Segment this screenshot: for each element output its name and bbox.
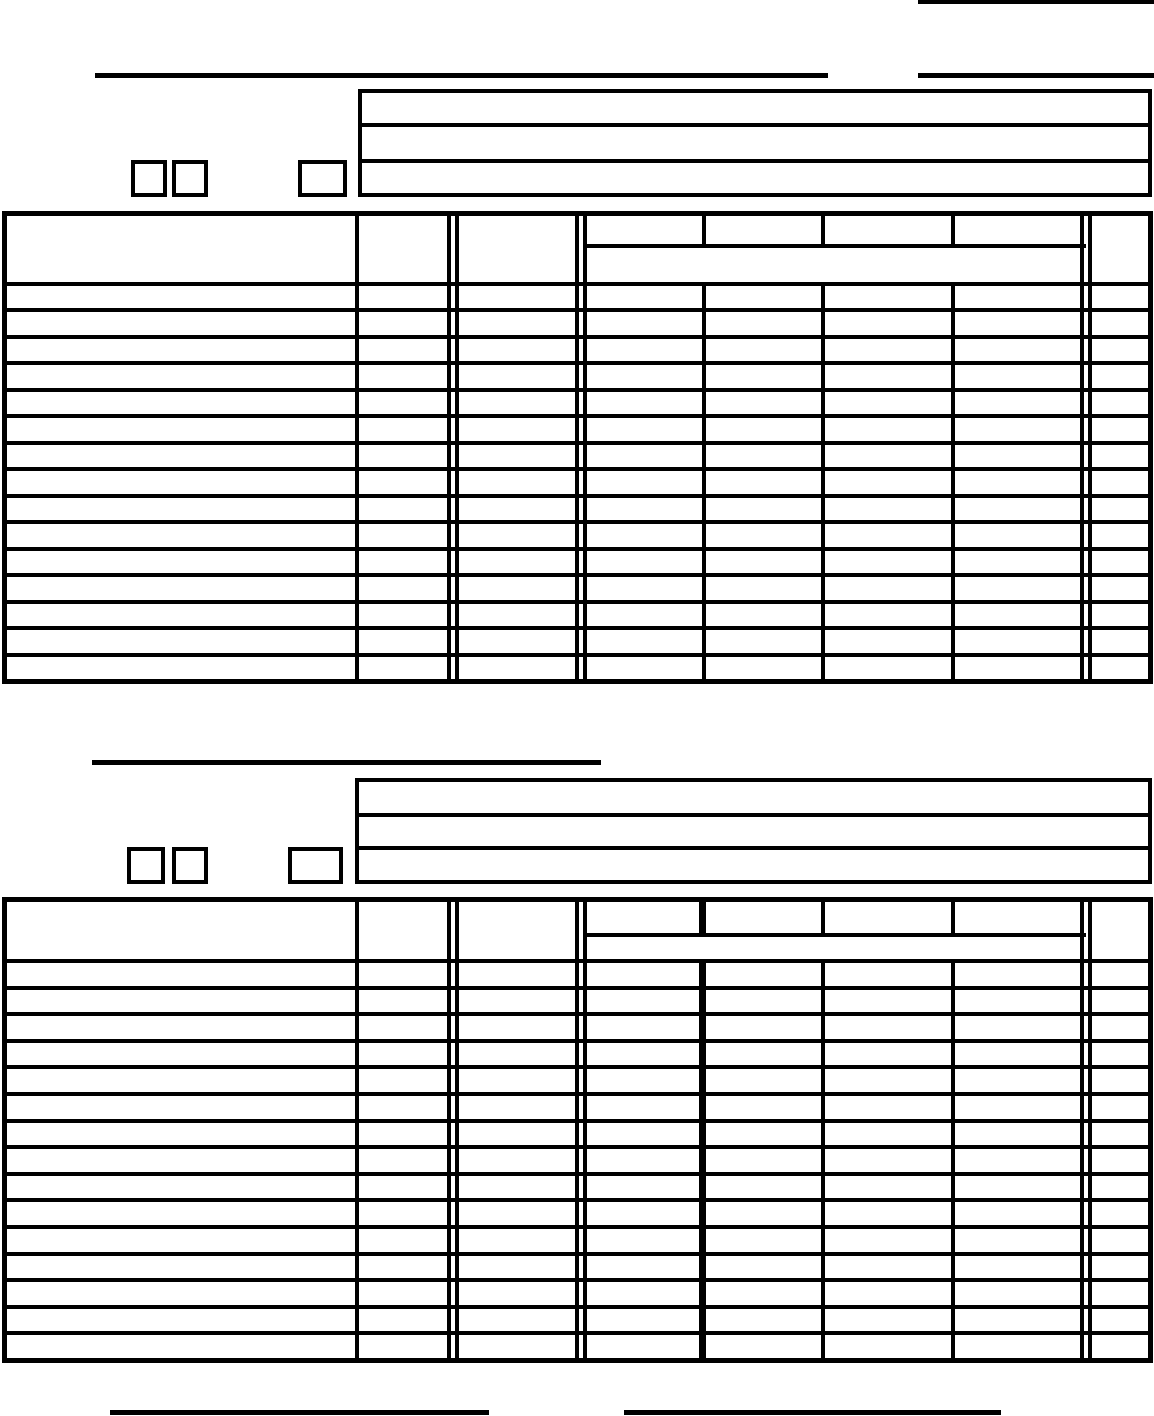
table-column-line [575,897,579,1363]
table-cell[interactable] [9,365,355,387]
table-cell[interactable] [361,286,447,308]
table-cell[interactable] [9,551,355,573]
table-cell[interactable] [361,1149,447,1172]
scoresheet-page [0,0,1154,1416]
table-cell[interactable] [9,1282,355,1305]
table-cell[interactable] [361,312,447,334]
table-cell[interactable] [459,630,575,652]
merged-subheader-cell [587,937,1080,955]
table-cell[interactable] [361,418,447,440]
table-cell[interactable] [825,1256,951,1279]
table-cell[interactable] [955,1043,1080,1066]
table-cell[interactable] [459,1229,575,1252]
table-cell[interactable] [825,1096,951,1119]
table-cell[interactable] [9,1149,355,1172]
header-blank-line-right[interactable] [918,73,1154,78]
table-cell[interactable] [709,1282,821,1305]
table-cell[interactable] [459,577,575,599]
table-cell[interactable] [709,1176,821,1199]
table-cell[interactable] [709,445,821,467]
table-cell[interactable] [955,471,1080,493]
table-cell[interactable] [709,1016,821,1039]
table-cell[interactable] [709,418,821,440]
table-cell[interactable] [709,339,821,361]
upper-info-box [358,89,1152,197]
table-cell[interactable] [459,365,575,387]
table-cell[interactable] [459,551,575,573]
table-cell[interactable] [587,365,702,387]
table-cell[interactable] [361,1043,447,1066]
table-cell[interactable] [361,1096,447,1119]
table-cell[interactable] [587,339,702,361]
table-column-line [702,282,706,684]
table-column-line [355,211,359,684]
table-column-line [575,211,579,684]
table-cell[interactable] [587,286,702,308]
table-cell[interactable] [459,498,575,520]
table-cell[interactable] [1092,339,1146,361]
table-cell[interactable] [1092,604,1146,626]
table-cell[interactable] [955,1149,1080,1172]
table-cell[interactable] [955,1016,1080,1039]
table-cell[interactable] [709,1202,821,1225]
table-cell[interactable] [9,1043,355,1066]
table-cell[interactable] [709,657,821,679]
table-cell[interactable] [361,365,447,387]
table-cell[interactable] [361,1229,447,1252]
table-cell[interactable] [361,1309,447,1332]
table-cell[interactable] [459,524,575,546]
table-cell[interactable] [459,1149,575,1172]
table-cell[interactable] [825,630,951,652]
table-cell[interactable] [9,312,355,334]
table-cell[interactable] [1092,1176,1146,1199]
table-cell[interactable] [587,1309,702,1332]
table-cell[interactable] [1092,392,1146,414]
table-cell[interactable] [9,604,355,626]
table-cell[interactable] [9,1256,355,1279]
table-cell[interactable] [459,445,575,467]
info-box-write-in-line[interactable] [364,163,1146,191]
table-cell[interactable] [1092,1069,1146,1092]
table-cell[interactable] [1092,365,1146,387]
table-cell[interactable] [955,312,1080,334]
table-cell[interactable] [361,1123,447,1146]
table-column-line [447,211,451,684]
footer-blank-line-left[interactable] [110,1410,489,1415]
table-cell[interactable] [459,286,575,308]
table-cell[interactable] [9,1069,355,1092]
table-cell[interactable] [9,1309,355,1332]
info-box-write-in-line[interactable] [364,93,1146,123]
table-cell[interactable] [459,1016,575,1039]
table-cell[interactable] [709,604,821,626]
table-cell[interactable] [1092,524,1146,546]
table-cell[interactable] [459,1256,575,1279]
table-cell[interactable] [361,990,447,1013]
merged-subheader-cell [587,248,1080,278]
table-cell[interactable] [459,1335,575,1358]
table-cell[interactable] [825,471,951,493]
table-cell[interactable] [361,1202,447,1225]
footer-blank-line-right[interactable] [624,1410,1001,1415]
table-column-line [702,211,706,248]
table-cell[interactable] [825,577,951,599]
table-cell[interactable] [361,551,447,573]
table-cell[interactable] [825,657,951,679]
table-cell[interactable] [955,657,1080,679]
table-cell[interactable] [955,1309,1080,1332]
table-cell[interactable] [587,1016,702,1039]
table-cell[interactable] [709,1043,821,1066]
table-cell[interactable] [587,1043,702,1066]
table-cell[interactable] [361,445,447,467]
table-cell[interactable] [709,1229,821,1252]
table-cell[interactable] [825,286,951,308]
table-cell[interactable] [459,657,575,679]
lower-info-box [355,778,1152,884]
table-header-cell [955,216,1080,244]
lower-checkbox-row [0,847,420,884]
table-cell[interactable] [1092,1096,1146,1119]
table-cell[interactable] [709,990,821,1013]
table-cell[interactable] [955,1229,1080,1252]
table-cell[interactable] [1092,498,1146,520]
info-box-write-in-line[interactable] [361,817,1146,846]
table-cell[interactable] [459,1096,575,1119]
checkbox[interactable] [172,160,208,197]
table-cell[interactable] [587,445,702,467]
table-cell[interactable] [1092,1149,1146,1172]
table-cell[interactable] [9,1096,355,1119]
upper-roster-table [2,211,1153,684]
table-cell[interactable] [955,392,1080,414]
table-cell[interactable] [361,392,447,414]
table-cell[interactable] [955,551,1080,573]
table-cell[interactable] [361,524,447,546]
table-header-cell [361,216,447,282]
table-cell[interactable] [9,286,355,308]
table-cell[interactable] [9,418,355,440]
table-cell[interactable] [1092,1229,1146,1252]
table-cell[interactable] [459,339,575,361]
table-cell[interactable] [459,418,575,440]
table-cell[interactable] [587,1256,702,1279]
table-cell[interactable] [361,963,447,986]
table-cell[interactable] [955,963,1080,986]
table-cell[interactable] [1092,1309,1146,1332]
table-cell[interactable] [709,1096,821,1119]
table-cell[interactable] [1092,551,1146,573]
table-cell[interactable] [825,1149,951,1172]
table-cell[interactable] [825,1123,951,1146]
checkbox[interactable] [288,847,343,884]
table-cell[interactable] [825,312,951,334]
lower-title-blank-line[interactable] [92,760,601,765]
table-header-cell [361,902,447,959]
table-cell[interactable] [825,551,951,573]
table-cell[interactable] [825,1229,951,1252]
table-cell[interactable] [709,1256,821,1279]
table-cell[interactable] [587,498,702,520]
table-cell[interactable] [709,498,821,520]
table-cell[interactable] [459,963,575,986]
table-cell[interactable] [361,604,447,626]
table-column-line [1080,211,1084,684]
table-cell[interactable] [361,1282,447,1305]
table-cell[interactable] [9,524,355,546]
table-cell[interactable] [9,445,355,467]
table-cell[interactable] [709,1335,821,1358]
table-cell[interactable] [825,339,951,361]
table-cell[interactable] [825,604,951,626]
table-cell[interactable] [459,1123,575,1146]
table-cell[interactable] [825,1309,951,1332]
info-box-write-in-line[interactable] [364,127,1146,159]
table-cell[interactable] [9,498,355,520]
checkbox[interactable] [298,160,347,197]
table-header-cell [459,902,575,959]
table-cell[interactable] [9,392,355,414]
table-cell[interactable] [587,1335,702,1358]
table-cell[interactable] [825,963,951,986]
table-cell[interactable] [709,1309,821,1332]
table-cell[interactable] [955,1069,1080,1092]
table-header-cell [9,216,355,282]
table-cell[interactable] [955,365,1080,387]
table-cell[interactable] [361,657,447,679]
table-cell[interactable] [587,471,702,493]
table-cell[interactable] [955,577,1080,599]
table-cell[interactable] [825,1016,951,1039]
table-cell[interactable] [1092,990,1146,1013]
table-cell[interactable] [709,471,821,493]
table-cell[interactable] [9,1016,355,1039]
table-cell[interactable] [1092,1335,1146,1358]
table-cell[interactable] [1092,1256,1146,1279]
table-cell[interactable] [587,418,702,440]
table-cell[interactable] [709,524,821,546]
table-cell[interactable] [9,963,355,986]
table-cell[interactable] [825,365,951,387]
table-cell[interactable] [9,1176,355,1199]
table-cell[interactable] [361,1256,447,1279]
table-cell[interactable] [9,1123,355,1146]
table-cell[interactable] [9,1229,355,1252]
table-cell[interactable] [709,1123,821,1146]
table-cell[interactable] [459,1202,575,1225]
table-cell[interactable] [825,1202,951,1225]
table-cell[interactable] [587,630,702,652]
table-cell[interactable] [709,630,821,652]
table-cell[interactable] [587,1096,702,1119]
table-cell[interactable] [9,630,355,652]
table-column-line [447,897,451,1363]
table-cell[interactable] [955,990,1080,1013]
table-cell[interactable] [955,1335,1080,1358]
table-cell[interactable] [1092,657,1146,679]
lower-roster-table [2,897,1153,1363]
table-cell[interactable] [587,1123,702,1146]
info-box-write-in-line[interactable] [361,850,1146,876]
table-cell[interactable] [361,630,447,652]
table-header-cell [955,902,1080,933]
table-column-line [355,897,359,1363]
table-header-cell [587,216,702,244]
table-cell[interactable] [587,1069,702,1092]
table-cell[interactable] [709,365,821,387]
table-cell[interactable] [361,471,447,493]
top-right-rule [918,0,1154,4]
table-cell[interactable] [955,418,1080,440]
table-cell[interactable] [9,990,355,1013]
table-cell[interactable] [955,498,1080,520]
table-cell[interactable] [587,1176,702,1199]
table-header-cell [825,902,951,933]
table-cell[interactable] [587,1229,702,1252]
table-cell[interactable] [709,963,821,986]
table-cell[interactable] [459,1282,575,1305]
checkbox[interactable] [172,847,208,884]
table-cell[interactable] [587,577,702,599]
table-cell[interactable] [587,1202,702,1225]
table-cell[interactable] [459,1176,575,1199]
table-cell[interactable] [825,990,951,1013]
table-cell[interactable] [955,286,1080,308]
table-cell[interactable] [709,312,821,334]
table-cell[interactable] [955,1256,1080,1279]
table-cell[interactable] [709,392,821,414]
table-cell[interactable] [825,1335,951,1358]
table-cell[interactable] [361,1335,447,1358]
table-cell[interactable] [1092,286,1146,308]
table-cell[interactable] [587,312,702,334]
table-cell[interactable] [709,286,821,308]
table-cell[interactable] [955,1282,1080,1305]
table-cell[interactable] [587,604,702,626]
table-cell[interactable] [587,1282,702,1305]
table-cell[interactable] [955,630,1080,652]
table-cell[interactable] [1092,1016,1146,1039]
table-cell[interactable] [459,1069,575,1092]
table-cell[interactable] [9,339,355,361]
table-header-cell [825,216,951,244]
table-cell[interactable] [825,392,951,414]
table-cell[interactable] [955,339,1080,361]
table-cell[interactable] [459,990,575,1013]
table-header-cell [1092,216,1146,282]
table-cell[interactable] [825,418,951,440]
table-cell[interactable] [1092,312,1146,334]
table-cell[interactable] [1092,963,1146,986]
table-header-cell [587,902,702,933]
table-cell[interactable] [709,1069,821,1092]
table-border-line [1148,897,1153,1363]
table-cell[interactable] [1092,418,1146,440]
table-cell[interactable] [955,1176,1080,1199]
table-cell[interactable] [587,990,702,1013]
table-cell[interactable] [955,604,1080,626]
table-cell[interactable] [587,524,702,546]
table-cell[interactable] [955,445,1080,467]
table-cell[interactable] [1092,630,1146,652]
header-blank-line-left[interactable] [95,73,828,78]
table-cell[interactable] [709,1149,821,1172]
table-header-cell [1092,902,1146,959]
table-cell[interactable] [459,312,575,334]
table-cell[interactable] [1092,1043,1146,1066]
table-cell[interactable] [955,1202,1080,1225]
table-cell[interactable] [361,577,447,599]
table-cell[interactable] [709,577,821,599]
table-cell[interactable] [825,1043,951,1066]
table-header-cell [459,216,575,282]
table-cell[interactable] [825,445,951,467]
table-cell[interactable] [587,551,702,573]
table-cell[interactable] [825,1069,951,1092]
table-cell[interactable] [9,1335,355,1358]
table-cell[interactable] [459,471,575,493]
table-cell[interactable] [1092,1123,1146,1146]
upper-checkbox-row [0,160,420,197]
info-box-write-in-line[interactable] [361,782,1146,813]
table-cell[interactable] [825,1282,951,1305]
table-cell[interactable] [9,577,355,599]
checkbox[interactable] [127,847,165,884]
table-cell[interactable] [361,1176,447,1199]
table-cell[interactable] [459,604,575,626]
table-cell[interactable] [9,657,355,679]
table-cell[interactable] [709,551,821,573]
table-cell[interactable] [1092,445,1146,467]
table-header-cell [9,902,355,959]
table-cell[interactable] [825,524,951,546]
checkbox[interactable] [131,160,167,197]
table-cell[interactable] [955,524,1080,546]
table-header-cell [709,902,821,933]
table-cell[interactable] [955,1123,1080,1146]
table-cell[interactable] [1092,471,1146,493]
table-cell[interactable] [361,339,447,361]
table-cell[interactable] [459,392,575,414]
table-cell[interactable] [1092,1202,1146,1225]
table-cell[interactable] [459,1309,575,1332]
table-cell[interactable] [825,1176,951,1199]
table-cell[interactable] [587,392,702,414]
table-column-line [1080,897,1084,1363]
table-cell[interactable] [587,1149,702,1172]
table-cell[interactable] [9,1202,355,1225]
table-header-cell [709,216,821,244]
table-cell[interactable] [361,1016,447,1039]
table-cell[interactable] [955,1096,1080,1119]
table-cell[interactable] [361,498,447,520]
table-cell[interactable] [459,1043,575,1066]
table-cell[interactable] [1092,577,1146,599]
table-cell[interactable] [361,1069,447,1092]
table-cell[interactable] [587,657,702,679]
table-cell[interactable] [9,471,355,493]
table-cell[interactable] [825,498,951,520]
table-border-line [2,897,7,1363]
table-cell[interactable] [1092,1282,1146,1305]
table-cell[interactable] [587,963,702,986]
